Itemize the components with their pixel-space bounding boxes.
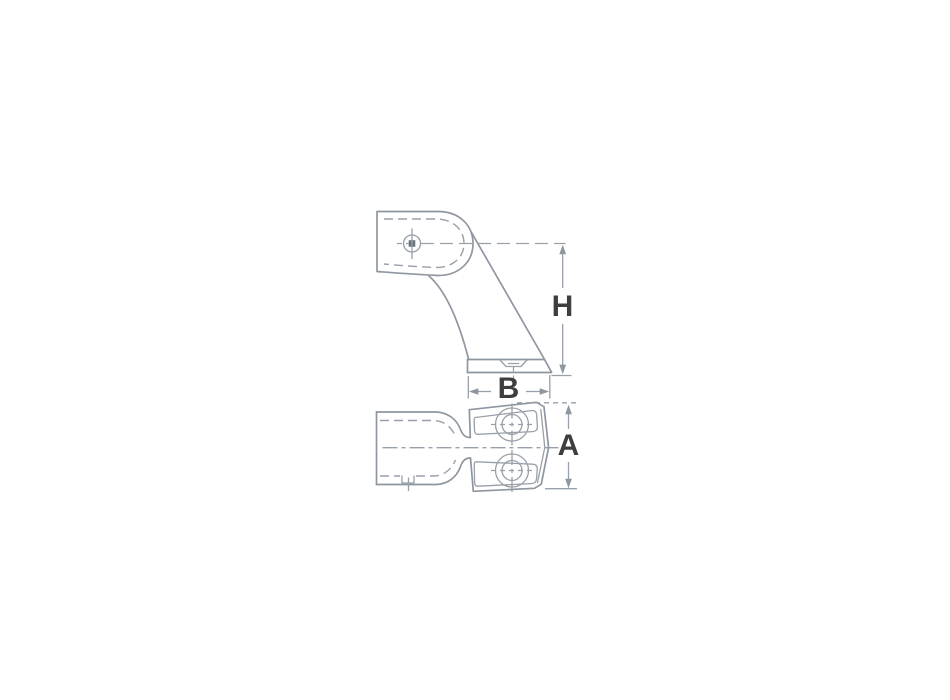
dim-label-a: A	[558, 431, 580, 461]
dim-label-h: H	[552, 292, 574, 322]
plate-left-edge-top	[469, 410, 470, 438]
bracket-technical-drawing	[0, 0, 950, 700]
arm-left-edge	[429, 276, 469, 359]
dim-a-arrow-bottom	[565, 479, 572, 489]
dim-a-arrow-top	[565, 405, 572, 415]
tube-bottom-edge	[377, 458, 471, 485]
side-view	[377, 212, 566, 383]
drawing-canvas: H B A	[0, 0, 950, 700]
dim-label-b: B	[498, 374, 520, 404]
plate-left-edge-bottom	[471, 458, 474, 491]
dim-h-arrow-top	[559, 245, 566, 255]
arm-right-edge	[472, 233, 552, 373]
tube-hidden-bottom-right	[416, 460, 456, 476]
tube-hidden-top	[380, 421, 456, 437]
tube-top-edge	[377, 412, 471, 438]
bottom-view	[377, 402, 559, 492]
dim-b-arrow-left	[469, 388, 479, 395]
dim-h-arrow-bottom	[559, 365, 566, 375]
dim-b-arrow-right	[540, 388, 550, 395]
